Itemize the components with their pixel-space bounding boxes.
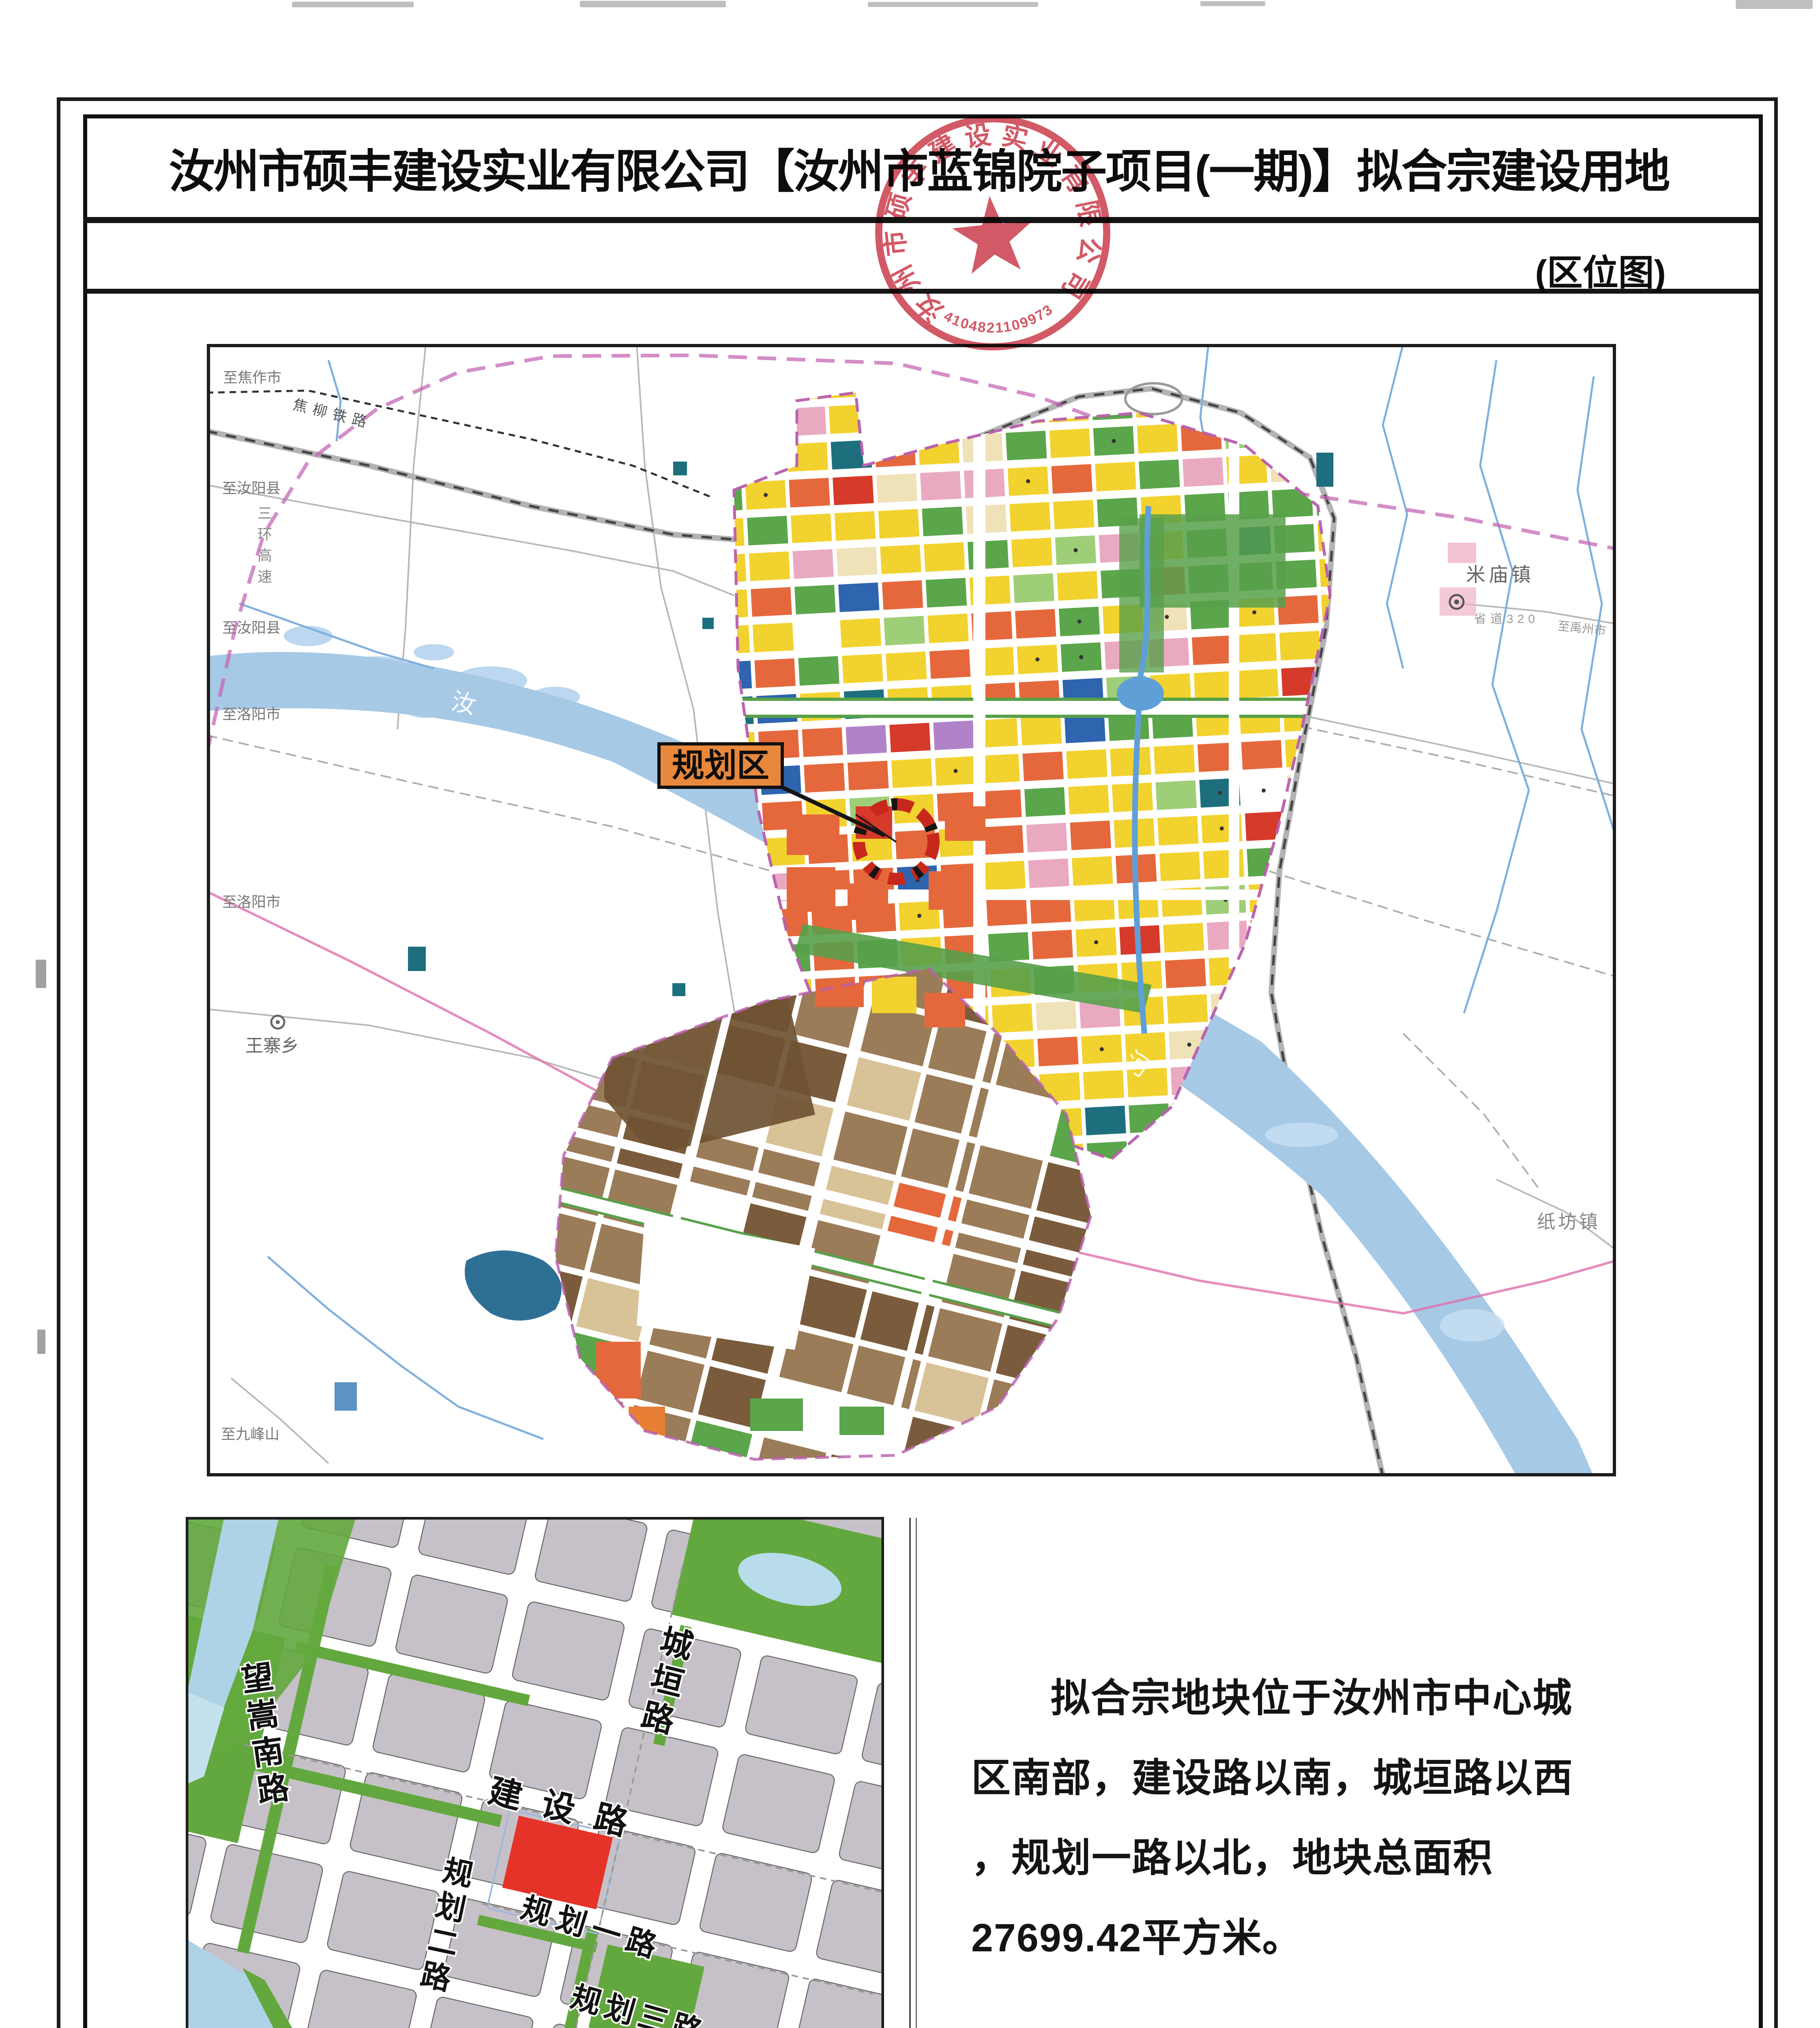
map-label: 至九峰山	[221, 1426, 279, 1442]
scan-artifact	[37, 1330, 45, 1354]
page-subtitle: (区位图)	[1535, 244, 1666, 296]
central-lake	[1117, 677, 1164, 711]
city-plan-map: 规划区 至焦作市 焦柳铁路 至汝阳县 三环高速 至汝阳县 至洛阳市 至洛阳市 至…	[207, 344, 1616, 1476]
scan-artifact	[1200, 1, 1265, 6]
scanned-document-page: { "page": { "title": "汝州市硕丰建设实业有限公司【汝州市蓝…	[0, 0, 1820, 2028]
seal-star	[950, 193, 1036, 275]
map-label: 米庙镇	[1466, 564, 1534, 586]
map-label: 至汝阳县	[222, 480, 281, 496]
map-label: 至洛阳市	[222, 894, 281, 910]
map-label: 至焦作市	[223, 369, 281, 386]
description-line: 拟合宗地块位于汝州市中心城	[971, 1658, 1701, 1738]
callout-label: 规划区	[672, 748, 769, 784]
location-description: 拟合宗地块位于汝州市中心城 区南部，建设路以南，城垣路以西 ，规划一路以北，地块…	[971, 1658, 1701, 1978]
pond-small	[335, 1382, 357, 1411]
map-label: 纸坊镇	[1537, 1211, 1600, 1232]
description-line: 区南部，建设路以南，城垣路以西	[971, 1738, 1701, 1818]
map-label: 省道320	[1474, 612, 1539, 626]
map-label: 至汝阳县	[222, 619, 281, 636]
description-line: ，规划一路以北，地块总面积	[971, 1818, 1701, 1898]
main-avenue	[726, 701, 1334, 715]
map-label: 王寨乡	[245, 1036, 299, 1056]
scan-artifact	[580, 1, 726, 7]
site-street-map: 望嵩南路 城垣路 建设路 规划一路 规划二路 规划三路 汝河北路	[186, 1517, 884, 2028]
scan-artifact	[292, 2, 414, 7]
map-label: 至洛阳市	[222, 706, 281, 722]
description-line: 27699.42平方米。	[971, 1898, 1701, 1978]
northeast-park	[1140, 514, 1286, 608]
scan-artifact	[868, 2, 1038, 7]
scan-artifact	[36, 960, 46, 988]
inset-divider-line	[909, 1518, 917, 2028]
company-seal: 汝州市硕丰建设实业有限公司 4104821109973	[867, 107, 1118, 359]
scan-artifact	[1736, 0, 1813, 9]
